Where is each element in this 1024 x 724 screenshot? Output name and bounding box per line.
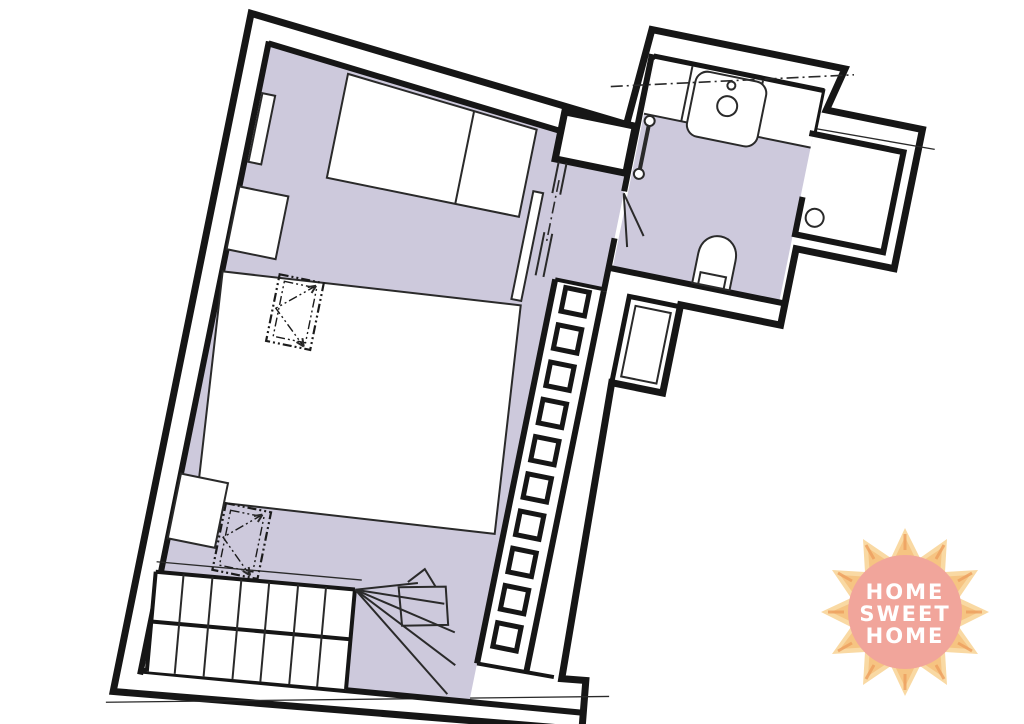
baluster-post [508, 548, 536, 576]
double-bed [197, 271, 521, 533]
floor-plan [106, 0, 947, 724]
baluster-post [531, 437, 559, 465]
logo-text-line-3: HOME [866, 624, 945, 648]
baluster-post [516, 511, 544, 539]
baluster-post [553, 325, 581, 353]
sink-faucet [727, 81, 736, 90]
baluster-post [523, 474, 551, 502]
floor-plan-drawing: HOME SWEET HOME [0, 0, 1024, 724]
floor-plan-page: HOME SWEET HOME [0, 0, 1024, 724]
baluster-post [538, 399, 566, 427]
towel-radiator-end-top [644, 115, 656, 127]
baluster-post [546, 362, 574, 390]
logo-text-line-2: SWEET [859, 602, 950, 626]
towel-radiator-end-bottom [633, 168, 645, 180]
home-sweet-home-logo: HOME SWEET HOME [821, 528, 989, 696]
baluster-post [493, 623, 521, 651]
logo-text-line-1: HOME [866, 580, 945, 604]
baluster-post [500, 585, 528, 613]
double-bed-outline [197, 271, 521, 533]
baluster-post [561, 288, 589, 316]
